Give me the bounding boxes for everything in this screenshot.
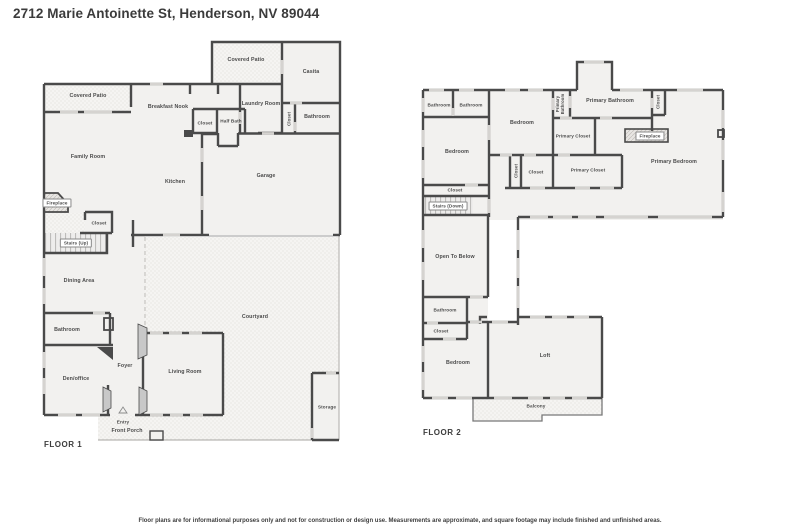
room-label-fireplace-2: Fireplace	[635, 132, 664, 141]
room-label-bedroom-bottom: Bedroom	[446, 360, 470, 366]
room-label-entry: Entry	[117, 420, 129, 425]
room-label-closet-hall: Closet	[287, 112, 292, 126]
room-label-bedroom-mid: Bedroom	[510, 120, 534, 126]
room-label-bedroom-left: Bedroom	[445, 149, 469, 155]
room-label-dining-area: Dining Area	[64, 278, 95, 284]
room-label-breakfast-nook: Breakfast Nook	[148, 104, 188, 110]
floor2-plan	[423, 62, 724, 421]
room-label-front-porch: Front Porch	[111, 428, 142, 434]
room-label-closet-2: Closet	[434, 329, 449, 334]
room-label-balcony: Balcony	[527, 404, 546, 409]
room-label-covered-patio-left: Covered Patio	[70, 93, 107, 99]
room-label-covered-patio-top: Covered Patio	[228, 57, 265, 63]
room-label-garage: Garage	[257, 173, 276, 179]
room-label-foyer: Foyer	[118, 363, 133, 369]
room-label-closet-kitchen: Closet	[198, 121, 213, 126]
room-label-den-office: Den/office	[63, 376, 90, 382]
room-label-half-bath: Half Bath	[220, 119, 241, 124]
room-label-stairs-down: Stairs (Down)	[429, 202, 468, 211]
room-label-loft: Loft	[540, 353, 550, 359]
room-label-bathroom-b: Bathroom	[460, 103, 483, 108]
room-label-primary-closet-2: Primary Closet	[571, 168, 606, 173]
room-label-bathroom-2: Bathroom	[434, 308, 457, 313]
floor-plan-drawing	[0, 0, 800, 530]
room-label-storage: Storage	[318, 405, 336, 410]
room-label-casita: Casita	[303, 69, 320, 75]
room-label-closet-pb: Closet	[656, 95, 661, 109]
room-label-primary-closet-1: Primary Closet	[556, 134, 591, 139]
room-label-closet-v: Closet	[514, 164, 519, 178]
room-label-family-room: Family Room	[71, 154, 105, 160]
disclaimer-text: Floor plans are for informational purpos…	[0, 518, 800, 524]
room-label-primary-bathroom-small: Primary Bathroom	[556, 91, 566, 117]
floor1-label: FLOOR 1	[44, 440, 82, 449]
room-label-kitchen: Kitchen	[165, 179, 185, 185]
room-label-stairs-up: Stairs (Up)	[60, 239, 92, 248]
room-label-laundry-room: Laundry Room	[242, 101, 281, 107]
floor-plan-page: 2712 Marie Antoinette St, Henderson, NV …	[0, 0, 800, 530]
room-label-bathroom-a: Bathroom	[428, 103, 451, 108]
room-label-primary-bathroom: Primary Bathroom	[586, 98, 634, 104]
room-label-courtyard: Courtyard	[242, 314, 268, 320]
room-label-living-room: Living Room	[168, 369, 201, 375]
room-label-bathroom-f1: Bathroom	[54, 327, 80, 333]
floor2-label: FLOOR 2	[423, 428, 461, 437]
room-label-bathroom-casita: Bathroom	[304, 114, 330, 120]
room-label-closet-stairs: Closet	[92, 221, 107, 226]
room-label-open-to-below: Open To Below	[435, 254, 474, 260]
room-label-closet-bedroom: Closet	[448, 188, 463, 193]
room-label-fireplace: Fireplace	[42, 199, 71, 208]
room-label-closet-mid: Closet	[529, 170, 544, 175]
room-label-primary-bedroom: Primary Bedroom	[651, 159, 697, 165]
